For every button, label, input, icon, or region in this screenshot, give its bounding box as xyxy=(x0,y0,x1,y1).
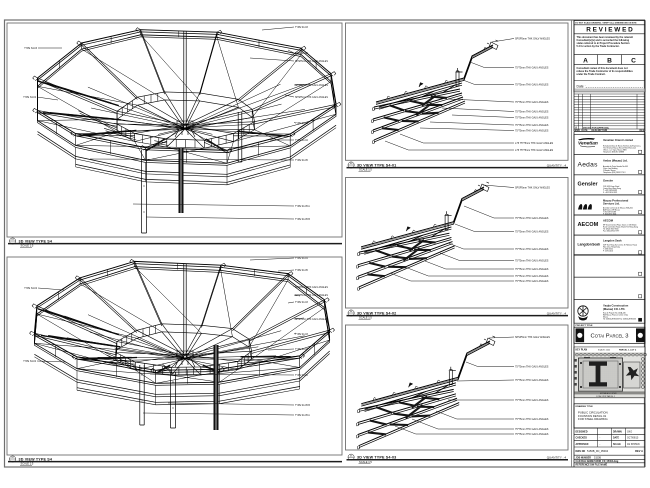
svg-text:75*75mm THK GALV ANGLES: 75*75mm THK GALV ANGLES xyxy=(515,248,549,251)
svg-text:DRAWING TITLE: DRAWING TITLE xyxy=(576,405,594,408)
svg-text:TYPE S4-03: TYPE S4-03 xyxy=(295,27,308,29)
svg-text:SCALE 1:1000: SCALE 1:1000 xyxy=(598,349,610,352)
svg-text:QUANTITY : 4: QUANTITY : 4 xyxy=(547,456,567,460)
svg-text:B: B xyxy=(607,58,612,65)
svg-text:TYPE S4-03: TYPE S4-03 xyxy=(295,123,308,125)
svg-text:TYPE S4-03: TYPE S4-03 xyxy=(295,302,308,304)
svg-text:SCALE: SCALE xyxy=(613,443,621,446)
svg-text:SPSP5mm THK GALV ANGLES: SPSP5mm THK GALV ANGLES xyxy=(295,60,328,63)
svg-text:75*75mm THK GALV ANGLES: 75*75mm THK GALV ANGLES xyxy=(515,366,549,369)
svg-text:3D VIEW TYPE S4-03: 3D VIEW TYPE S4-03 xyxy=(357,456,396,460)
svg-text:TYPE S4-05 A: TYPE S4-05 A xyxy=(295,414,310,417)
svg-text:DATE: DATE xyxy=(613,437,620,440)
svg-text:75*75mm THK GALV ANGLES: 75*75mm THK GALV ANGLES xyxy=(515,280,549,283)
svg-text:75*75mm THK GALV ANGLES: 75*75mm THK GALV ANGLES xyxy=(515,130,549,133)
svg-text:SCALE 1:5: SCALE 1:5 xyxy=(359,460,372,464)
svg-text:PARCEL 1, LOT 2: PARCEL 1, LOT 2 xyxy=(619,349,637,352)
svg-text:75*75mm THK GALV ANGLES: 75*75mm THK GALV ANGLES xyxy=(515,268,549,271)
svg-text:Aedas (Macau) Ltd.: Aedas (Macau) Ltd. xyxy=(603,158,628,162)
svg-text:75*75mm THK GALV ANGLES: 75*75mm THK GALV ANGLES xyxy=(515,418,549,421)
svg-text:3D VIEW TYPE S4-01: 3D VIEW TYPE S4-01 xyxy=(357,163,396,167)
svg-text:TYPE S4-03: TYPE S4-03 xyxy=(24,48,37,50)
svg-text:KEY PLAN: KEY PLAN xyxy=(576,349,588,352)
svg-text:3D VIEW TYPE S4: 3D VIEW TYPE S4 xyxy=(19,239,53,243)
svg-text:OCT/09/15: OCT/09/15 xyxy=(627,438,639,440)
svg-text:75*75mm THK GALV ANGLES: 75*75mm THK GALV ANGLES xyxy=(515,231,549,234)
svg-text:TYPE S4-01: TYPE S4-01 xyxy=(295,258,308,260)
svg-text:TYPE S4-03: TYPE S4-03 xyxy=(295,334,308,336)
svg-text:DWG NO: DWG NO xyxy=(576,451,586,453)
svg-text:A: A xyxy=(583,58,588,65)
svg-text:5150B_FD_05004: 5150B_FD_05004 xyxy=(587,449,609,453)
svg-text:TYPE S4-05: TYPE S4-05 xyxy=(295,375,308,377)
svg-text:TYPE S4-04: TYPE S4-04 xyxy=(295,349,308,351)
svg-text:DRAWN: DRAWN xyxy=(613,430,622,433)
svg-text:75*75mm THK GALV ANGLES: 75*75mm THK GALV ANGLES xyxy=(515,124,549,127)
svg-text:TYPE S4-05 B: TYPE S4-05 B xyxy=(295,219,310,221)
svg-text:75*75mm THK GALV ANGLES: 75*75mm THK GALV ANGLES xyxy=(515,84,549,87)
svg-text:TYPE S4-02: TYPE S4-02 xyxy=(23,97,36,99)
svg-text:SCALE 1:5: SCALE 1:5 xyxy=(21,244,34,248)
svg-text:TYPE S4-05 B: TYPE S4-05 B xyxy=(295,405,310,407)
svg-text:Langdon Seah: Langdon Seah xyxy=(603,239,622,243)
svg-text:GKO: GKO xyxy=(627,431,632,433)
svg-text:Venetian: Venetian xyxy=(578,141,598,147)
svg-text:REFERENCE DW FILE NAME: REFERENCE DW FILE NAME xyxy=(576,464,608,467)
svg-text:TYPE S4-05 A: TYPE S4-05 A xyxy=(295,205,310,208)
svg-text:COTAI STRIP PARCEL 2: COTAI STRIP PARCEL 2 xyxy=(596,395,615,398)
svg-text:under the Trade Contract.: under the Trade Contract. xyxy=(577,73,606,76)
svg-text:L75 75*75mm THK GALV ANGLES: L75 75*75mm THK GALV ANGLES xyxy=(515,149,553,152)
svg-text:R E V I E W E D: R E V I E W E D xyxy=(586,27,633,34)
svg-text:SPSP5mm THK GALV ANGLES: SPSP5mm THK GALV ANGLES xyxy=(295,294,328,297)
svg-text:5.4 for action by the Trade Co: 5.4 for action by the Trade Contractor. xyxy=(577,45,620,48)
svg-text:QUANTITY : 4: QUANTITY : 4 xyxy=(547,163,567,167)
svg-text:DESIGNED: DESIGNED xyxy=(576,431,588,433)
svg-text:75*75mm THK GALV ANGLES: 75*75mm THK GALV ANGLES xyxy=(515,101,549,104)
svg-text:TYPE S4-02: TYPE S4-02 xyxy=(24,288,37,290)
svg-text:FOR STEEL DRAWING: FOR STEEL DRAWING xyxy=(578,417,608,421)
svg-text:QUANTITY : 4: QUANTITY : 4 xyxy=(547,311,567,315)
svg-text:Tel: 00853-28785033 Fax: 0085: Tel: 00853-28785033 Fax: 00853-28785033 xyxy=(603,319,636,321)
svg-text:TYPE S4-04: TYPE S4-04 xyxy=(295,140,308,142)
svg-text:Venetian Orient Limited: Venetian Orient Limited xyxy=(603,138,633,142)
svg-text:L75 75*75mm THK GALV ANGLES: L75 75*75mm THK GALV ANGLES xyxy=(515,142,553,145)
svg-text:SPSP5mm THK GALV ANGLES: SPSP5mm THK GALV ANGLES xyxy=(515,38,550,41)
svg-text:75*75mm THK GALV ANGLES: 75*75mm THK GALV ANGLES xyxy=(515,275,549,278)
svg-text:Gensler: Gensler xyxy=(578,182,599,188)
svg-text:SPSP5mm THK GALV ANGLES: SPSP5mm THK GALV ANGLES xyxy=(515,187,550,190)
svg-text:3D VIEW TYPE S4-02: 3D VIEW TYPE S4-02 xyxy=(357,311,396,315)
svg-text:AECOM: AECOM xyxy=(603,219,614,223)
svg-text:SPSP5mm THK GALV ANGLES: SPSP5mm THK GALV ANGLES xyxy=(295,318,328,321)
svg-text:APPROVED: APPROVED xyxy=(576,443,589,446)
svg-text:75*75mm THK GALV ANGLES: 75*75mm THK GALV ANGLES xyxy=(515,379,549,382)
svg-text:Langdon Seah: Langdon Seah xyxy=(578,242,601,246)
svg-text:75*75mm THK GALV ANGLES: 75*75mm THK GALV ANGLES xyxy=(515,260,549,263)
svg-text:AECOM: AECOM xyxy=(578,222,599,228)
svg-text:CHECKED: CHECKED xyxy=(576,438,588,440)
svg-text:75*75mm THK GALV ANGLES: 75*75mm THK GALV ANGLES xyxy=(515,399,549,402)
svg-text:75*75mm THK GALV ANGLES: 75*75mm THK GALV ANGLES xyxy=(515,111,549,114)
svg-text:TYPE S4-02: TYPE S4-02 xyxy=(295,53,308,55)
svg-text:Telephone: (853) 81 118888: Telephone: (853) 81 118888 xyxy=(603,152,624,154)
svg-text:Services Ltd.: Services Ltd. xyxy=(603,202,620,206)
svg-text:F: +852 2810 8321: F: +852 2810 8321 xyxy=(603,192,617,194)
svg-text:C: C xyxy=(631,58,636,65)
svg-text:SCALE 1:5: SCALE 1:5 xyxy=(359,316,372,320)
svg-text:Telephone: (853) 2833 1770 F: Telephone: (853) 2833 1770 F xyxy=(603,172,626,174)
svg-text:75*75mm THK GALV ANGLES: 75*75mm THK GALV ANGLES xyxy=(515,433,549,436)
svg-text:Date :: Date : xyxy=(577,85,586,89)
svg-text:REV A: REV A xyxy=(635,449,643,453)
svg-text:AS SHOWN: AS SHOWN xyxy=(627,443,640,446)
svg-text:75*75mm THK GALV ANGLES: 75*75mm THK GALV ANGLES xyxy=(515,117,549,120)
svg-text:SPSP5mm THK GALV ANGLES: SPSP5mm THK GALV ANGLES xyxy=(295,84,328,87)
svg-text:ESTRADA DO ISTMO: ESTRADA DO ISTMO xyxy=(600,392,617,395)
svg-text:75*75mm THK GALV ANGLES: 75*75mm THK GALV ANGLES xyxy=(515,217,549,220)
svg-text:TYPE S4-02: TYPE S4-02 xyxy=(23,361,36,363)
svg-text:75*75mm THK GALV ANGLES: 75*75mm THK GALV ANGLES xyxy=(515,67,549,70)
svg-text:Gensler: Gensler xyxy=(603,178,613,182)
svg-text:3D VIEW TYPE S4: 3D VIEW TYPE S4 xyxy=(19,457,53,461)
svg-text:75*75mm THK GALV ANGLES: 75*75mm THK GALV ANGLES xyxy=(515,428,549,431)
svg-text:(Macau) CO. LTD.: (Macau) CO. LTD. xyxy=(603,307,625,311)
svg-text:SCALE 1:5: SCALE 1:5 xyxy=(359,168,372,172)
svg-text:Aedas: Aedas xyxy=(578,162,599,169)
svg-text:Fax: (852) 3922 9797: Fax: (852) 3922 9797 xyxy=(603,230,619,232)
svg-text:F: 2576 0416: F: 2576 0416 xyxy=(603,250,613,252)
svg-text:SCALE 1:5: SCALE 1:5 xyxy=(21,462,34,466)
svg-text:SPSP5mm THK GALV ANGLES: SPSP5mm THK GALV ANGLES xyxy=(295,286,328,289)
svg-text:TYPE S4-05: TYPE S4-05 xyxy=(295,270,308,272)
svg-text:DO NOT SCALE DRAWING. VERIFY A: DO NOT SCALE DRAWING. VERIFY ALL DIMENSI… xyxy=(575,22,637,25)
svg-text:SPSP5mm THK GALV ANGLES: SPSP5mm THK GALV ANGLES xyxy=(515,336,550,339)
svg-text:TYPE S4-05: TYPE S4-05 xyxy=(295,160,308,162)
svg-text:SPSP5mm THK GALV ANGLES: SPSP5mm THK GALV ANGLES xyxy=(295,96,328,99)
